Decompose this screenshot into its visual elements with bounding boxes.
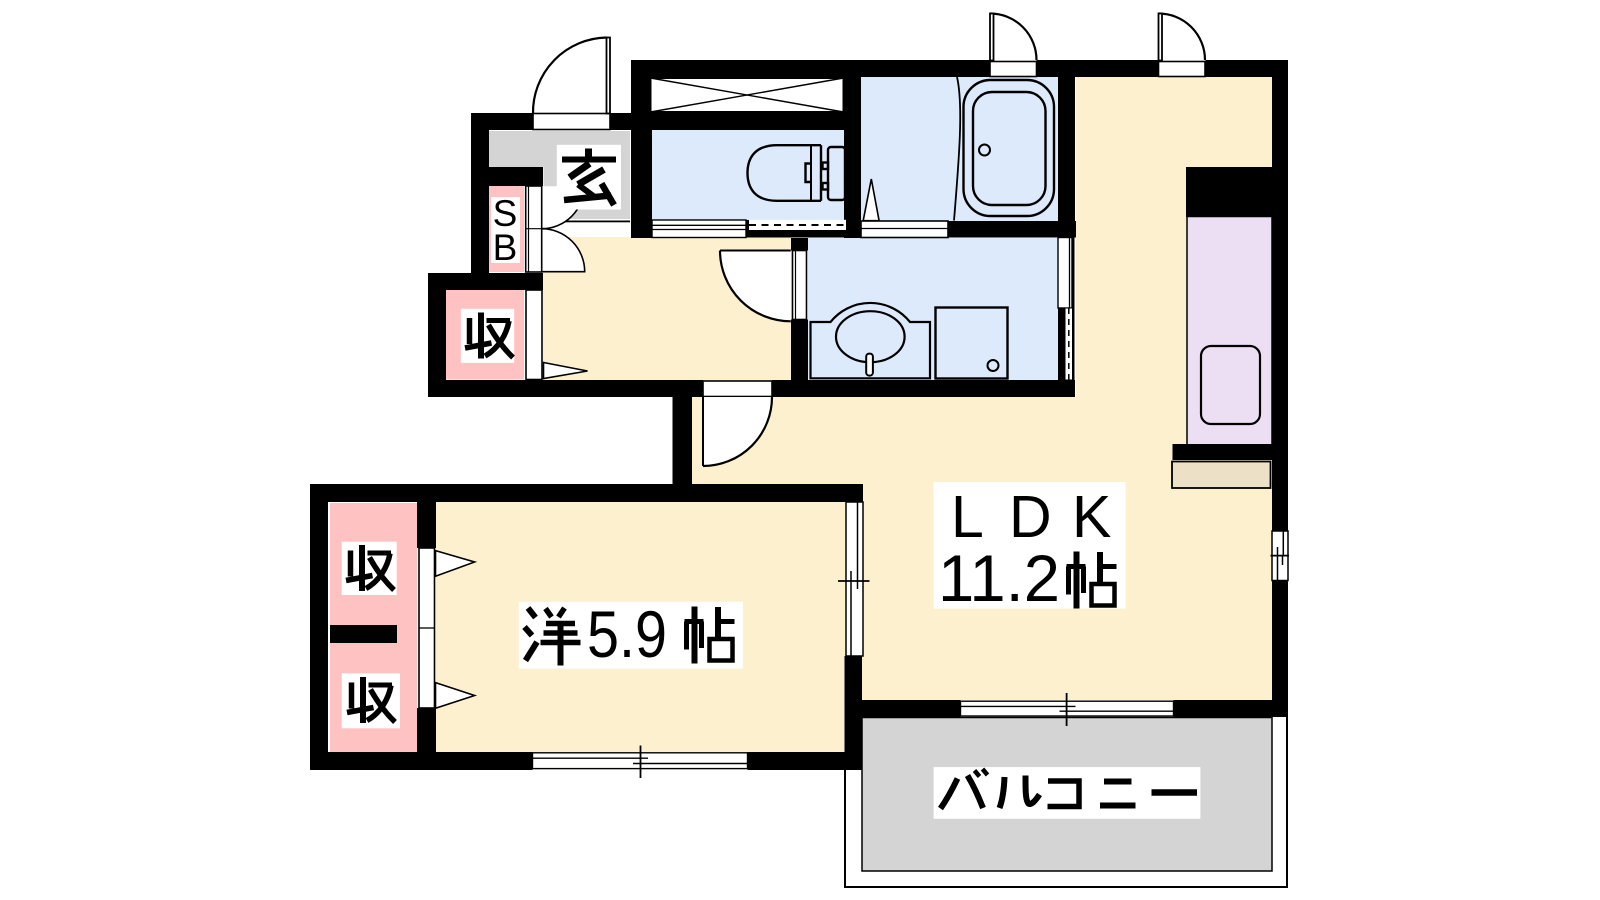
svg-text:K: K [1072, 484, 1111, 550]
svg-text:5.9: 5.9 [587, 597, 667, 671]
svg-text:B: B [493, 227, 518, 268]
svg-text:11.2: 11.2 [938, 541, 1060, 615]
